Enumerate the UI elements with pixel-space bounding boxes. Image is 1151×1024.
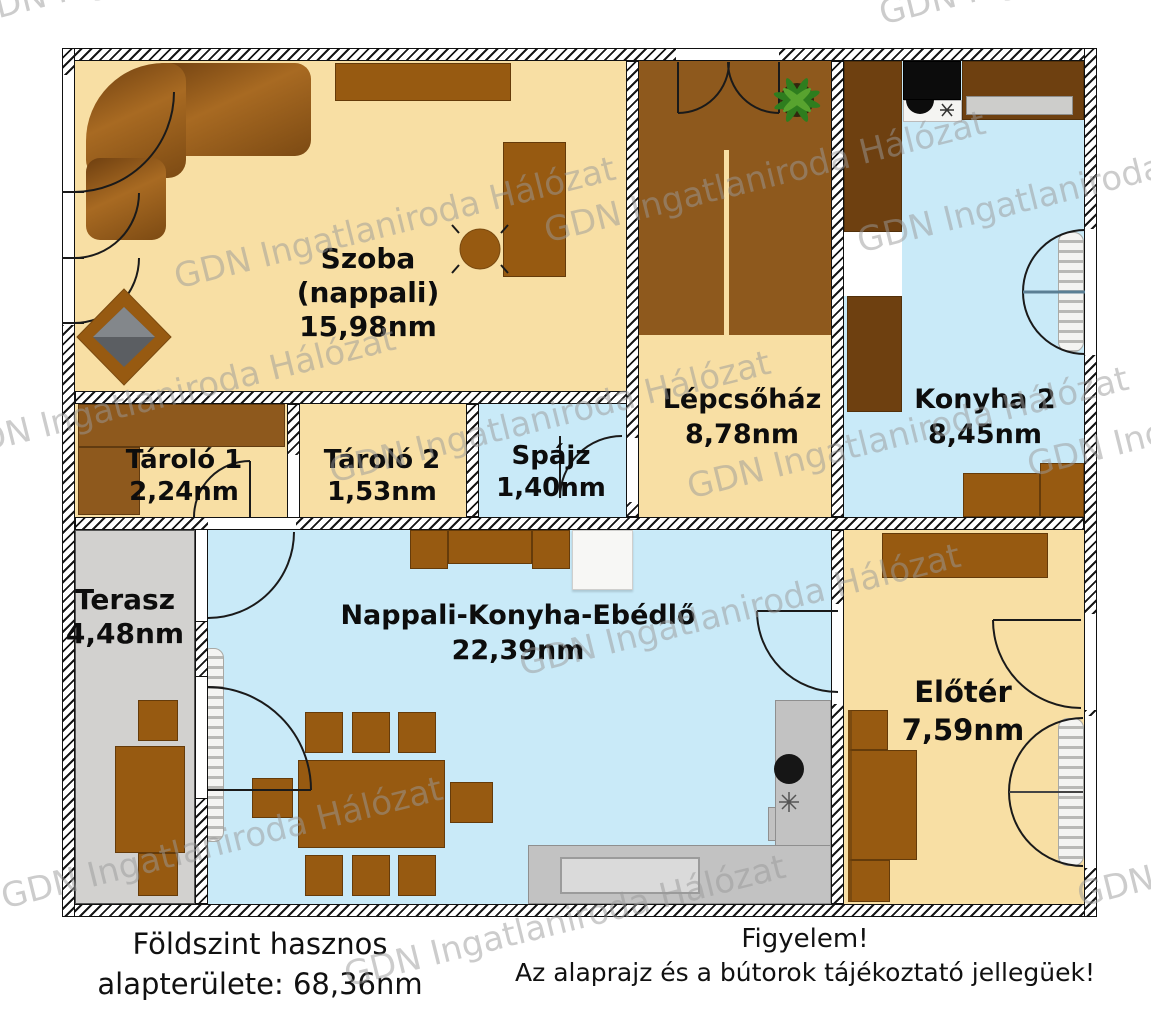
wall-outer-bottom (62, 904, 1097, 917)
dining-chair (352, 855, 390, 896)
wall-terasz-hatch2 (195, 798, 208, 904)
wardrobe (848, 750, 917, 860)
footer-area-total: Földszint hasznos alapterülete: 68,36nm (60, 924, 460, 1004)
storage-shelf-top (78, 404, 285, 447)
door-opening-lepcsohaz-top (676, 49, 779, 60)
dining-chair (305, 712, 343, 753)
watermark: GDN Ingatlaniroda Hálózat (875, 0, 1151, 33)
hall-shelf (882, 533, 1048, 578)
radiator-konyha2 (1058, 232, 1084, 352)
kitchen2-bench1 (963, 473, 1040, 517)
sofa-seat (448, 530, 532, 564)
label-spajz: Spájz 1,40nm (451, 440, 651, 504)
kitchen2-sink-inset (966, 96, 1073, 115)
stove (903, 61, 961, 100)
wall-szoba-storage (75, 391, 639, 404)
dining-chair (398, 712, 436, 753)
kitchen2-cabinet-upper (844, 61, 902, 232)
label-szoba: Szoba (nappali) 15,98nm (208, 242, 528, 344)
terrace-table (115, 746, 185, 853)
dishwasher (560, 857, 700, 894)
sofa-armrest-left (410, 530, 448, 569)
kitchen2-bench2 (1040, 463, 1084, 517)
footer-disclaimer: Figyelem! Az alaprajz és a bútorok tájék… (500, 922, 1110, 990)
label-tarolo1: Tároló 1 2,24nm (84, 444, 284, 508)
hall-cabinet-small-bottom (848, 860, 890, 902)
dining-chair (305, 855, 343, 896)
label-konyha2: Konyha 2 8,45nm (885, 382, 1085, 452)
dining-chair (450, 782, 493, 823)
label-eloter: Előtér 7,59nm (813, 673, 1113, 749)
staircase-divider (724, 150, 729, 335)
label-lepcsohaz: Lépcsőház 8,78nm (642, 382, 842, 452)
window-opening-konyha2-right (1085, 229, 1096, 355)
kitchen-counter-notch (768, 807, 776, 841)
fridge (572, 530, 633, 590)
wall-outer-top (62, 48, 1097, 61)
dining-table (298, 760, 445, 848)
dining-chair (252, 778, 293, 818)
label-nappali: Nappali-Konyha-Ebédlő 22,39nm (268, 598, 768, 668)
dining-chair (352, 712, 390, 753)
kitchen2-counter-gap (844, 232, 902, 296)
corner-sofa-left (86, 158, 166, 240)
terrace-chair-top (138, 700, 178, 741)
wall-shelf (335, 63, 511, 101)
floorplan-canvas: Szoba (nappali) 15,98nm Tároló 1 2,24nm … (0, 0, 1151, 1024)
sink-counter (903, 100, 962, 122)
label-terasz: Terasz 4,48nm (30, 583, 220, 651)
watermark: GDN Ingatlaniroda Hálózat (0, 0, 415, 33)
window-opening-szoba-left (63, 75, 74, 325)
terrace-chair-bottom (138, 853, 178, 896)
door-opening-nappali-top (208, 518, 296, 529)
sofa-armrest-right (532, 530, 570, 569)
staircase (639, 61, 831, 335)
dining-chair (398, 855, 436, 896)
